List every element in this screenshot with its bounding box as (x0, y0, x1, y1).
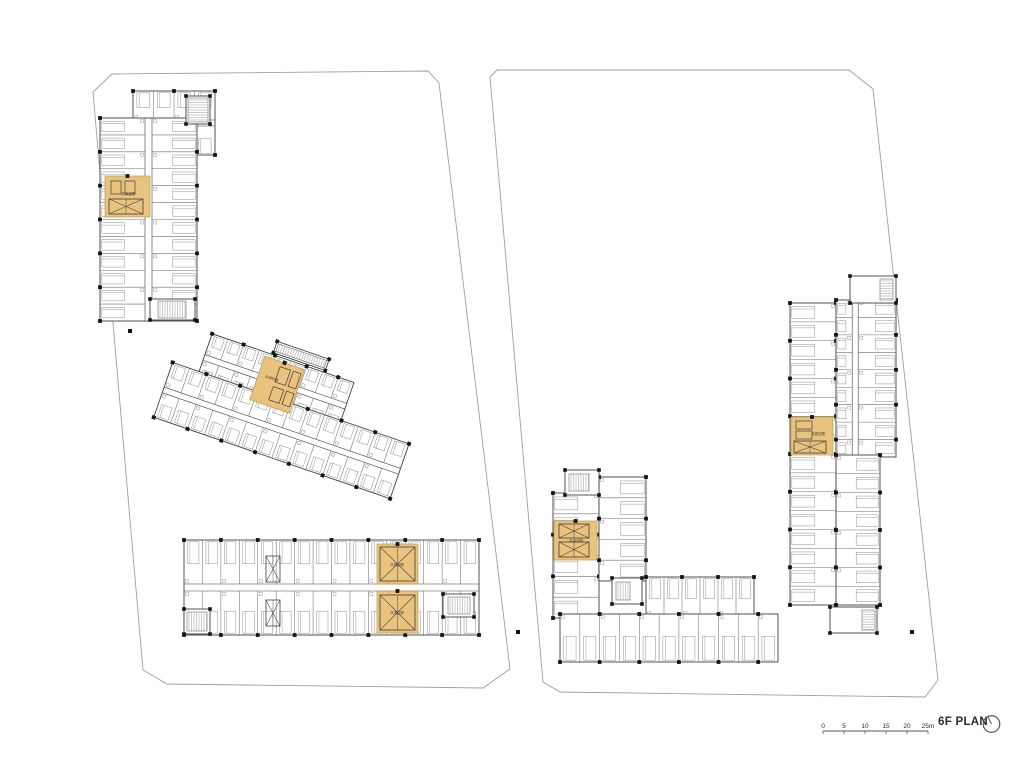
building-wing (644, 575, 756, 618)
column-marker (878, 453, 882, 457)
column-marker (330, 633, 334, 637)
column-marker (834, 603, 838, 607)
column-marker (213, 153, 217, 157)
highlighted-core: 共用空間 (554, 519, 597, 560)
column-marker (128, 329, 132, 333)
column-marker (98, 285, 102, 289)
column-marker (834, 453, 838, 457)
column-marker (195, 184, 199, 188)
column-marker (834, 368, 838, 372)
highlighted-core: 共用空間 (377, 589, 418, 633)
column-marker (834, 298, 838, 302)
stair-block (828, 605, 879, 635)
floor-plan-drawing: 共用空間共用空間共用空間共用空間共用空間共用空間0510152025m (0, 0, 1024, 768)
column-marker (403, 633, 407, 637)
column-marker (637, 612, 641, 616)
scale-tick-label: 5 (842, 723, 846, 730)
building-wing (597, 475, 648, 581)
core-label: 共用空間 (121, 191, 135, 196)
column-marker (716, 575, 720, 579)
column-marker (834, 528, 838, 532)
column-marker (597, 558, 601, 562)
scale-bar: 0510152025m (821, 723, 934, 734)
column-marker (834, 566, 838, 570)
column-marker (551, 574, 555, 578)
column-marker (894, 333, 898, 337)
column-marker (894, 368, 898, 372)
column-marker (644, 517, 648, 521)
column-marker (878, 491, 882, 495)
column-marker (558, 660, 562, 664)
building-wing (558, 612, 778, 664)
core-label: 共用空間 (390, 610, 404, 615)
stair-block (610, 576, 644, 606)
highlighted-core: 共用空間 (791, 415, 833, 455)
core-label: 共用空間 (811, 431, 825, 436)
stair-block (563, 468, 601, 497)
column-marker (878, 528, 882, 532)
column-marker (644, 575, 648, 579)
column-marker (558, 612, 562, 616)
column-marker (98, 251, 102, 255)
column-marker (834, 491, 838, 495)
column-marker (788, 339, 792, 343)
column-marker (551, 491, 555, 495)
column-marker (477, 538, 481, 542)
column-marker (910, 630, 914, 634)
column-marker (834, 333, 838, 337)
scale-tick-label: 25m (922, 723, 935, 730)
column-marker (219, 633, 223, 637)
highlighted-core: 共用空間 (377, 542, 418, 584)
column-marker (98, 150, 102, 154)
column-marker (598, 660, 602, 664)
scale-tick-label: 20 (903, 723, 911, 730)
column-marker (788, 490, 792, 494)
column-marker (440, 633, 444, 637)
column-marker (403, 538, 407, 542)
scale-tick-label: 10 (861, 723, 869, 730)
column-marker (756, 612, 760, 616)
column-marker (98, 116, 102, 120)
column-marker (788, 301, 792, 305)
column-marker (477, 633, 481, 637)
column-marker (195, 251, 199, 255)
column-marker (717, 660, 721, 664)
column-marker (256, 633, 260, 637)
column-marker (516, 630, 520, 634)
building-wing (834, 298, 898, 457)
column-marker (195, 285, 199, 289)
column-marker (788, 377, 792, 381)
column-marker (878, 566, 882, 570)
drawing-sheet: 共用空間共用空間共用空間共用空間共用空間共用空間0510152025m 6F P… (0, 0, 1024, 768)
building-wing (182, 538, 481, 637)
column-marker (598, 612, 602, 616)
column-marker (644, 475, 648, 479)
column-marker (551, 616, 555, 620)
column-marker (756, 660, 760, 664)
column-marker (293, 633, 297, 637)
column-marker (677, 660, 681, 664)
column-marker (98, 319, 102, 323)
column-marker (219, 538, 223, 542)
column-marker (172, 89, 176, 93)
stair-block (184, 94, 212, 126)
column-marker (213, 89, 217, 93)
column-marker (597, 517, 601, 521)
column-marker (366, 538, 370, 542)
column-marker (677, 612, 681, 616)
stair-block (182, 607, 212, 636)
stair-block (848, 274, 898, 305)
column-marker (195, 150, 199, 154)
column-marker (752, 575, 756, 579)
column-marker (788, 565, 792, 569)
column-marker (98, 218, 102, 222)
highlighted-core: 共用空間 (105, 174, 150, 217)
column-marker (131, 89, 135, 93)
scale-tick-label: 0 (821, 723, 825, 730)
core-label: 共用空間 (569, 538, 583, 543)
column-marker (366, 633, 370, 637)
column-marker (330, 538, 334, 542)
column-marker (637, 660, 641, 664)
column-marker (195, 218, 199, 222)
column-marker (680, 575, 684, 579)
column-marker (98, 184, 102, 188)
core-label: 共用空間 (390, 562, 404, 567)
building-wing (98, 116, 199, 323)
scale-tick-label: 15 (882, 723, 890, 730)
column-marker (717, 612, 721, 616)
column-marker (293, 538, 297, 542)
north-arrow-icon (978, 710, 1006, 738)
stair-block (441, 592, 476, 619)
column-marker (788, 528, 792, 532)
column-marker (182, 538, 186, 542)
column-marker (834, 438, 838, 442)
column-marker (256, 538, 260, 542)
stair-block (148, 297, 197, 322)
column-marker (440, 538, 444, 542)
column-marker (788, 603, 792, 607)
column-marker (894, 403, 898, 407)
building-wing (834, 453, 882, 607)
column-marker (834, 403, 838, 407)
column-marker (894, 438, 898, 442)
column-marker (644, 558, 648, 562)
